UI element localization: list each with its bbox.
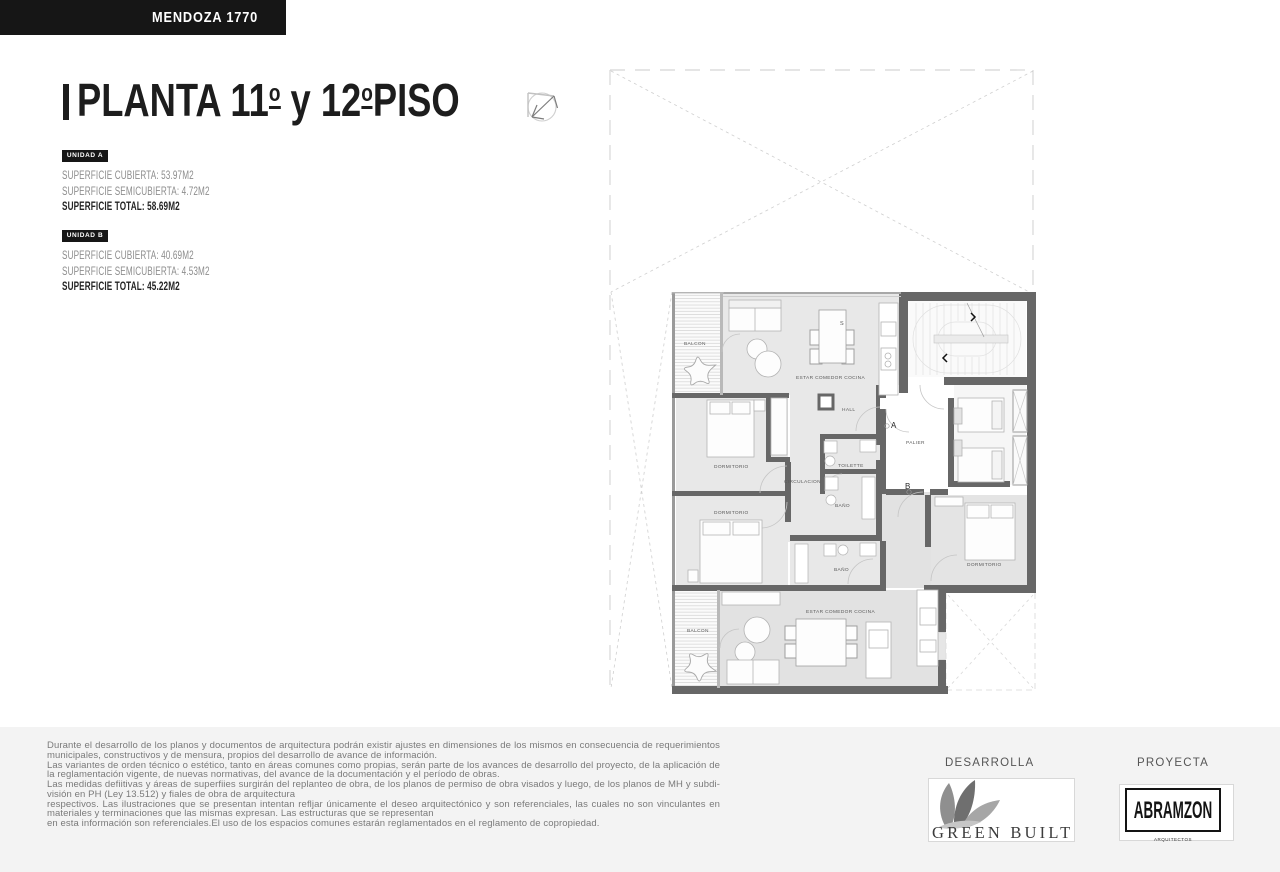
svg-text:GREEN BUILT: GREEN BUILT (932, 823, 1073, 841)
svg-text:BALCON: BALCON (684, 341, 706, 347)
svg-text:DORMITORIO: DORMITORIO (967, 562, 1002, 568)
svg-text:A: A (891, 421, 897, 430)
svg-text:S: S (840, 321, 844, 327)
svg-text:DORMITORIO: DORMITORIO (714, 510, 749, 516)
svg-text:PALIER: PALIER (906, 440, 925, 446)
svg-text:ESTAR COMEDOR COCINA: ESTAR COMEDOR COCINA (806, 609, 875, 615)
svg-text:BAÑO: BAÑO (834, 566, 849, 573)
svg-text:CIRCULACION: CIRCULACION (784, 479, 821, 485)
svg-text:TOILETTE: TOILETTE (838, 463, 864, 469)
svg-text:DORMITORIO: DORMITORIO (714, 464, 749, 470)
svg-text:HALL: HALL (842, 407, 855, 413)
svg-text:BALCON: BALCON (687, 628, 709, 634)
svg-text:ESTAR COMEDOR COCINA: ESTAR COMEDOR COCINA (796, 375, 865, 381)
svg-text:BAÑO: BAÑO (835, 502, 850, 509)
